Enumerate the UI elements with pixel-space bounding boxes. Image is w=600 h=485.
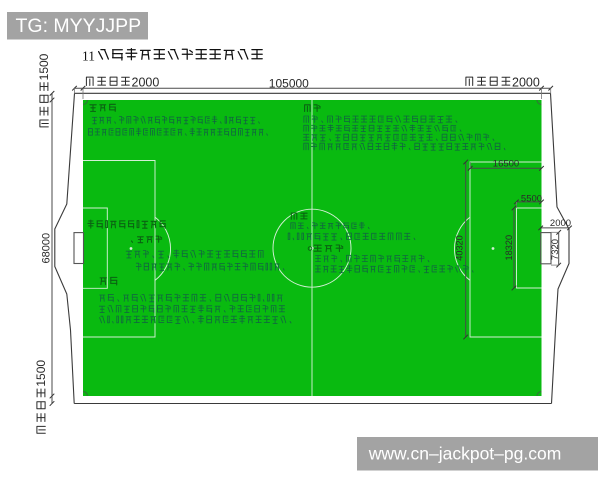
svg-text:2000: 2000 — [132, 75, 160, 89]
svg-text:2000: 2000 — [512, 75, 540, 89]
svg-text:TG: MYYJJPP: TG: MYYJJPP — [16, 15, 142, 37]
svg-text:68000: 68000 — [40, 233, 52, 264]
svg-text:5500: 5500 — [521, 193, 542, 204]
svg-text:11: 11 — [82, 48, 95, 63]
svg-text:7320: 7320 — [550, 239, 561, 260]
svg-text:105000: 105000 — [269, 77, 309, 91]
svg-text:18320: 18320 — [504, 235, 514, 261]
svg-text:40320: 40320 — [455, 235, 465, 261]
svg-text:1500: 1500 — [37, 53, 51, 80]
svg-text:2000: 2000 — [550, 218, 571, 229]
svg-text:16500: 16500 — [493, 158, 519, 169]
svg-text:1500: 1500 — [34, 360, 48, 387]
svg-text:www.cn–jackpot–pg.com: www.cn–jackpot–pg.com — [368, 444, 562, 464]
